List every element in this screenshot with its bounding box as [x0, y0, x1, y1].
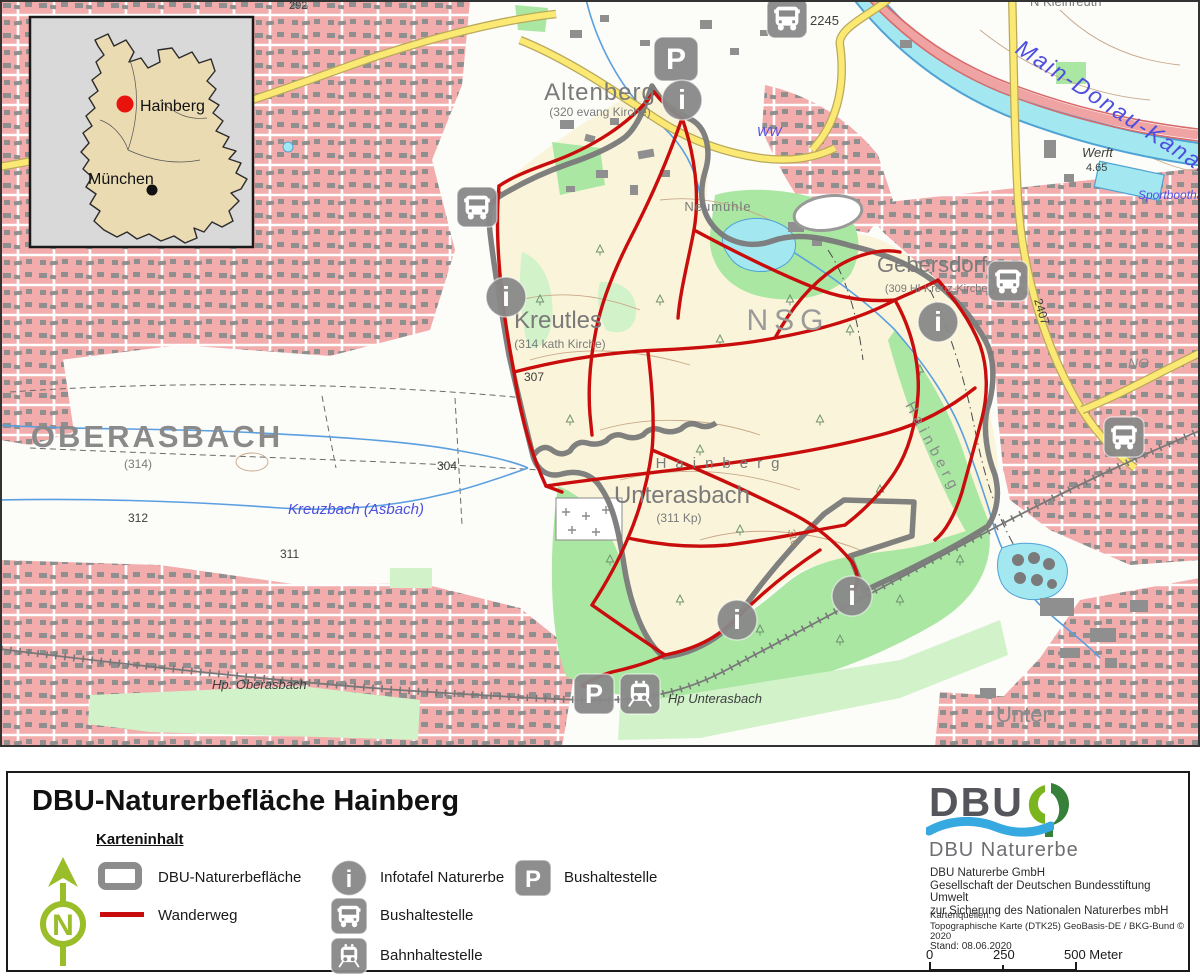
parking-icon: P — [574, 674, 614, 714]
legend-label-train: Bahnhaltestelle — [380, 947, 483, 964]
svg-text:i: i — [934, 306, 942, 337]
label-ww: WW — [757, 124, 783, 139]
dbu-brand: DBU Naturerbe — [929, 839, 1079, 862]
scale-label-500: 500 Meter — [1064, 947, 1123, 962]
legend-section-title: Karteninhalt — [96, 831, 184, 848]
label-unterasbach-sub: (311 Kp) — [656, 511, 701, 525]
inset-hainberg-label: Hainberg — [140, 98, 205, 115]
info-icon: i — [662, 80, 702, 120]
label-altenberg-sub: (320 evang Kirche) — [549, 105, 650, 119]
inset-hainberg-marker — [117, 96, 134, 113]
sources-line: Topographische Karte (DTK25) GeoBasis-DE… — [930, 922, 1188, 943]
label-sportboothafen: Sportboothafen — [1138, 188, 1200, 202]
info-icon: i — [832, 576, 872, 616]
label-neumuehle: Neumühle — [684, 199, 751, 214]
svg-text:i: i — [848, 580, 856, 611]
legend-label-area: DBU-Naturerbefläche — [158, 869, 301, 886]
svg-text:i: i — [733, 604, 741, 635]
bus-icon — [457, 187, 497, 227]
bus-icon — [1104, 417, 1144, 457]
label-werft: Werft — [1082, 145, 1114, 160]
label-oberasbach-sub: (314) — [124, 457, 152, 471]
legend-label-trail: Wanderweg — [158, 907, 237, 924]
org-line-2: Gesellschaft der Deutschen Bundesstiftun… — [930, 880, 1188, 905]
svg-text:i: i — [346, 866, 353, 893]
sources-label: Kartenquellen: — [930, 911, 1188, 922]
map-sheet: 292 Altenberg (320 evang Kirche) Neumühl… — [0, 0, 1200, 979]
label-gebersdorf-sub: (309 Hl-Kreuz-Kirche) — [885, 283, 991, 295]
page-title: DBU-Naturerbefläche Hainberg — [32, 785, 459, 818]
label-unter: Unter — [996, 702, 1050, 727]
north-letter: N — [52, 909, 74, 942]
svg-text:i: i — [502, 281, 510, 312]
label-2245: 2245 — [810, 13, 839, 28]
label-kreuzbach: Kreuzbach (Asbach) — [288, 501, 424, 518]
scale-label-0: 0 — [926, 947, 933, 962]
sources-block: Kartenquellen: Topographische Karte (DTK… — [930, 911, 1188, 943]
label-gebersdorf: Gebersdorf — [877, 252, 988, 277]
info-icon: i — [717, 600, 757, 640]
dbu-logo-wave — [926, 817, 1054, 839]
legend-label-info: Infotafel Naturerbe — [380, 869, 504, 886]
svg-text:P: P — [525, 866, 541, 893]
label-oberasbach: OBERASBACH — [31, 419, 283, 454]
label-304: 304 — [437, 459, 457, 473]
parking-icon: P — [654, 37, 698, 81]
topographic-map: 292 Altenberg (320 evang Kirche) Neumühl… — [0, 0, 1200, 747]
svg-text:P: P — [666, 43, 686, 76]
org-line-1: DBU Naturerbe GmbH — [930, 867, 1188, 880]
legend-panel: DBU-Naturerbefläche Hainberg Karteninhal… — [6, 771, 1190, 972]
bus-icon — [330, 897, 368, 935]
label-307: 307 — [524, 370, 544, 384]
bus-icon — [988, 261, 1028, 301]
label-werft-elev: 4.65 — [1086, 162, 1107, 174]
label-311: 311 — [280, 547, 299, 561]
label-no: NO — [1128, 355, 1149, 371]
legend-label-parking: Bushaltestelle — [564, 869, 657, 886]
legend-swatch-trail — [100, 912, 144, 917]
svg-text:P: P — [585, 679, 603, 709]
scale-bar — [926, 961, 1086, 973]
info-icon: i — [486, 277, 526, 317]
legend-swatch-area — [98, 862, 142, 890]
parking-icon: P — [514, 859, 552, 897]
label-altenberg: Altenberg — [544, 79, 656, 106]
train-icon — [330, 937, 368, 975]
label-312: 312 — [128, 511, 148, 525]
train-icon — [620, 674, 660, 714]
inset-muenchen-label: München — [88, 171, 154, 188]
label-nsg: NSG — [746, 304, 829, 337]
label-hainberg-flur: Hainberg — [656, 455, 789, 472]
north-arrow: N — [32, 853, 94, 969]
svg-text:i: i — [678, 84, 686, 115]
label-kreutles-sub: (314 kath Kirche) — [514, 337, 605, 351]
info-icon: i — [918, 302, 958, 342]
bus-icon — [767, 0, 807, 38]
info-icon: i — [330, 859, 368, 897]
label-hp-oberasbach: Hp. Oberasbach — [212, 677, 307, 692]
scale-label-250: 250 — [993, 947, 1015, 962]
label-hp-unterasbach: Hp Unterasbach — [668, 691, 762, 706]
label-kreutles: Kreutles — [514, 307, 602, 334]
inset-map: Hainberg München — [30, 17, 253, 247]
label-unterasbach: Unterasbach — [614, 482, 750, 509]
legend-label-bus: Bushaltestelle — [380, 907, 473, 924]
